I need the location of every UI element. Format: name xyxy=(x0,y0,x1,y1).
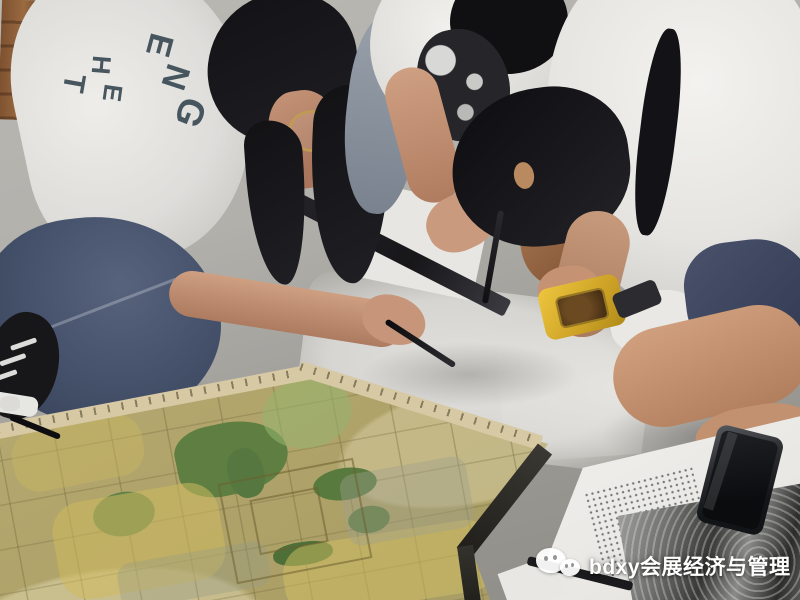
photo-scene: E N G H E T xyxy=(0,0,800,600)
tshirt-letter: E xyxy=(99,83,127,104)
wechat-icon xyxy=(536,546,582,586)
paper-scrap xyxy=(0,396,20,411)
jeans-seam xyxy=(44,278,176,331)
person-left-hair-strands-front xyxy=(242,118,311,287)
sneaker-lace xyxy=(10,337,37,351)
bubble-eye xyxy=(544,556,548,561)
sneaker-lace xyxy=(0,353,26,367)
tape-measure-window xyxy=(554,287,610,329)
tshirt-letter: H xyxy=(88,55,116,76)
bubble-eye xyxy=(565,564,568,568)
bubble-eye xyxy=(571,563,574,567)
watermark: bdxy会展经济与管理 xyxy=(536,546,791,586)
watermark-text: bdxy会展经济与管理 xyxy=(589,551,791,581)
chat-bubble-small xyxy=(560,559,580,576)
sneaker-lace xyxy=(0,369,18,383)
bubble-eye xyxy=(553,555,557,560)
